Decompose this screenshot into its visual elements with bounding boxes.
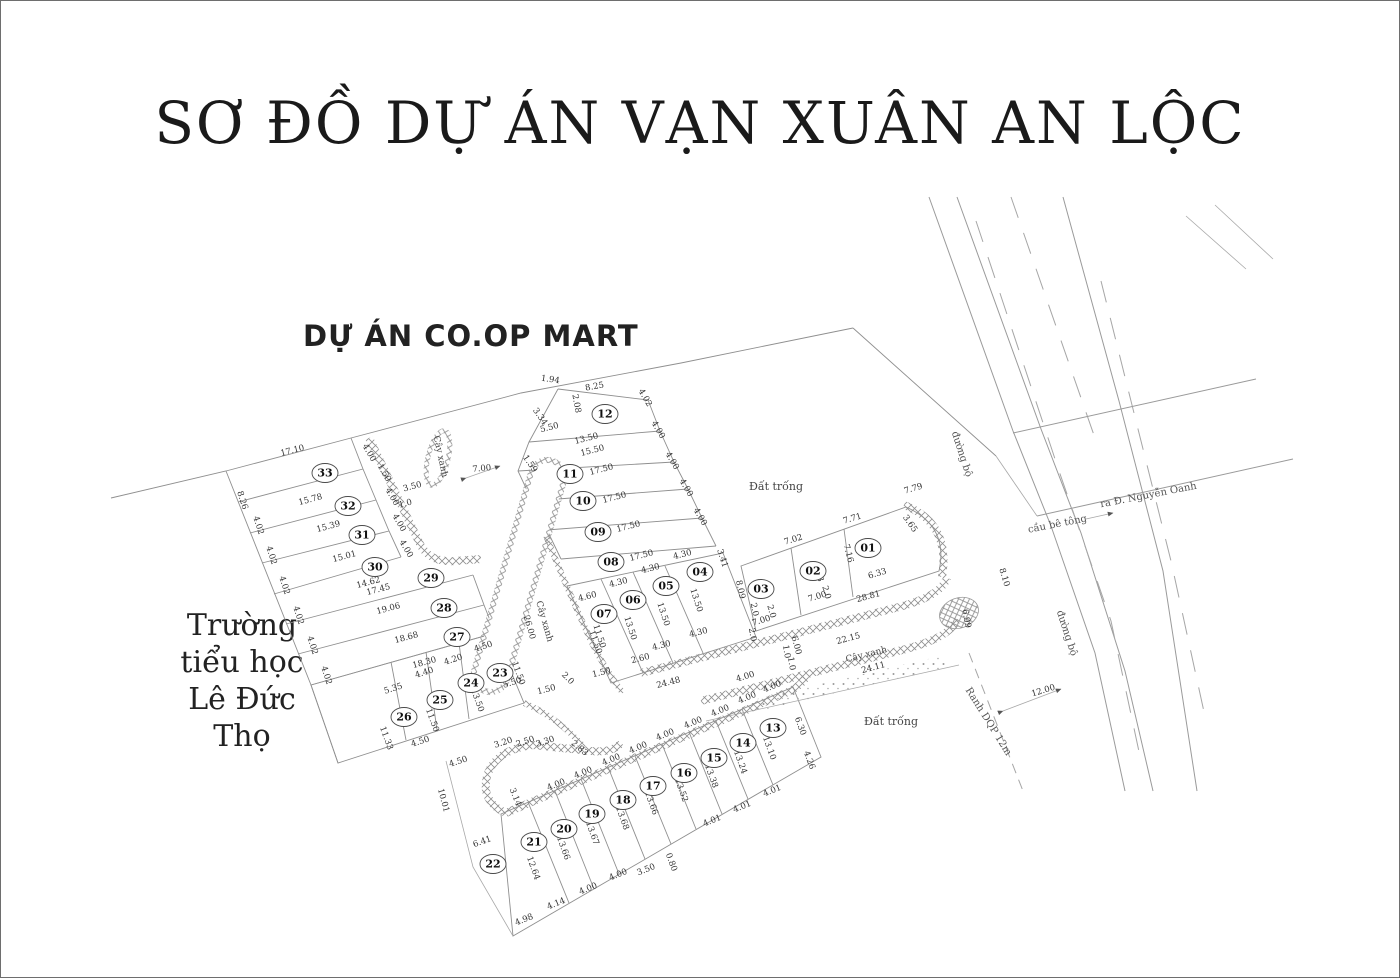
dimension-label: 13.50: [654, 601, 671, 627]
lot-number: 21: [526, 836, 541, 849]
dimension-label: 4.01: [702, 813, 723, 829]
area-label: đường bộ: [1054, 609, 1079, 657]
lot-number: 01: [860, 542, 875, 555]
dimension-label: 2.0: [748, 602, 761, 617]
dimension-label: 4.60: [577, 590, 598, 604]
dimension-label: 7.00: [472, 463, 492, 475]
dimension-label: 1.94: [540, 374, 560, 387]
lot-number: 32: [340, 500, 355, 513]
dimension-label: 4.30: [640, 562, 661, 576]
dimension-label: 15.39: [315, 519, 341, 535]
dimension-label: 4.14: [546, 896, 567, 912]
dimension-label: 7.71: [842, 512, 863, 527]
dimension-label: 2.0: [559, 670, 576, 687]
dimension-label: 4.01: [762, 783, 783, 799]
dimension-label: 4.02: [263, 545, 278, 566]
dimension-label: 2.83: [569, 739, 590, 759]
dimension-label: 10.01: [435, 787, 451, 813]
lot-number: 07: [596, 608, 611, 621]
dimension-label: 3.50: [636, 862, 657, 878]
dimension-label: 4.30: [608, 576, 629, 590]
dimension-label: 24.48: [655, 675, 681, 691]
lot-number: 22: [485, 858, 500, 871]
lot-number: 31: [354, 529, 369, 542]
dimension-label: 2.60: [630, 652, 651, 666]
dimension-label: 2.08: [569, 393, 582, 413]
dimension-label: 17.50: [601, 490, 627, 506]
dimension-label: 8.26: [234, 490, 249, 511]
lot-number: 13: [765, 722, 780, 735]
dimension-label: 15.78: [297, 492, 323, 508]
dimension-label: 28.81: [855, 589, 881, 605]
dimension-label: 4.50: [448, 754, 469, 769]
dimension-label: 4.00: [677, 477, 695, 498]
dimension-label: 17.50: [615, 519, 641, 535]
lot-number: 09: [590, 526, 605, 539]
lot-number: 18: [615, 794, 631, 807]
lot-number: 10: [575, 495, 591, 508]
dimension-label: 13.50: [687, 587, 704, 613]
dimension-label: 17.50: [628, 548, 654, 564]
dimension-label: 4.00: [663, 450, 681, 471]
dimension-label: 4.50: [410, 734, 431, 749]
dimension-label: 12.00: [1030, 683, 1056, 700]
dimension-label: 8.10: [996, 567, 1011, 588]
dimension-label: 6.33: [867, 567, 888, 582]
dimension-label: 1.0: [785, 656, 797, 671]
lot-number: 08: [603, 556, 619, 569]
lot-number: 28: [436, 602, 452, 615]
lot-number: 25: [432, 694, 447, 707]
lot-number: 03: [753, 583, 768, 596]
dimension-label: 1.0: [398, 497, 414, 510]
dimension-label: 13.50: [621, 615, 638, 641]
dimension-label: 4.98: [514, 912, 535, 928]
lot-number: 33: [317, 467, 332, 480]
lot-number: 02: [805, 565, 820, 578]
lot-number: 23: [492, 667, 507, 680]
lot-number: 30: [367, 561, 383, 574]
dimension-label: 7.02: [783, 533, 804, 548]
lot-number: 15: [706, 752, 721, 765]
dimension-label: 15.50: [579, 443, 605, 459]
lot-number: 11: [562, 468, 577, 481]
dimension-label: 4.30: [688, 626, 709, 640]
lot-number: 05: [658, 580, 673, 593]
dimension-label: 17.10: [279, 443, 305, 459]
dimension-label: 13.10: [760, 735, 778, 761]
dimension-label: 17.50: [588, 462, 614, 478]
dimension-label: 1.50: [536, 683, 557, 697]
area-label: Đất trống: [749, 480, 803, 493]
dimension-label: 4.00: [735, 670, 756, 685]
dimension-label: 4.00: [397, 538, 415, 559]
dimension-label: 4.02: [304, 635, 319, 656]
dimension-label: 7.79: [903, 482, 924, 497]
dimension-label: 18.68: [393, 630, 419, 646]
dimension-label: 4.00: [649, 419, 667, 440]
area-label: Đất trống: [864, 715, 918, 728]
lot-number: 27: [449, 631, 464, 644]
dimension-label: 15.01: [331, 549, 357, 565]
dimension-label: 3.41: [714, 548, 729, 569]
dimension-label: 13.24: [731, 749, 749, 775]
area-label: cầu bê tông: [1027, 512, 1089, 535]
dimension-label: 6.41: [472, 834, 493, 850]
lot-number: 04: [692, 566, 708, 579]
dimension-label: 13.67: [583, 820, 601, 846]
area-label: đường bộ: [949, 430, 974, 478]
dimension-label: 11.33: [377, 725, 395, 751]
area-label: Ranh DQP 12m: [963, 686, 1014, 759]
dimension-label: 13.66: [554, 835, 572, 861]
dimension-label: 7.00: [807, 590, 828, 605]
dimension-label: 3.14: [507, 787, 523, 808]
dimension-label: 4.00: [578, 881, 599, 897]
dimension-label: 4.20: [443, 652, 464, 667]
dimension-label: 4.00: [691, 506, 709, 527]
dimension-label: 4.30: [651, 639, 672, 653]
lot-number: 26: [396, 711, 412, 724]
dimension-label: 4.02: [290, 605, 305, 626]
dimension-label: 8.25: [584, 380, 604, 393]
dimension-label: 4.01: [732, 799, 753, 815]
lot-number: 24: [463, 677, 479, 690]
dimension-label: 5.35: [383, 681, 404, 696]
dimension-label: 12.64: [524, 855, 542, 881]
site-plan-page: SƠ ĐỒ DỰ ÁN VẠN XUÂN AN LỘC DỰ ÁN CO.OP …: [0, 0, 1400, 978]
lot-number: 17: [645, 780, 660, 793]
dimension-label: 4.00: [608, 867, 629, 883]
site-map: 17.1015.7815.3915.0114.6217.4519.0618.68…: [1, 1, 1400, 978]
dimension-label: 3.50: [402, 480, 423, 495]
dimension-label: 4.02: [636, 387, 654, 408]
dimension-label: 3.65: [900, 513, 919, 534]
lot-number: 14: [735, 737, 751, 750]
area-label: ra Đ. Nguyễn Oanh: [1099, 480, 1198, 511]
dimension-label: 7.16: [841, 543, 856, 564]
lot-number: 12: [597, 408, 612, 421]
dimension-label: 11.50: [423, 707, 441, 733]
dimension-label: 19.06: [375, 601, 401, 617]
lot-number: 06: [625, 594, 641, 607]
lot-number: 19: [584, 808, 599, 821]
lot-number: 29: [423, 572, 438, 585]
dimension-label: 22.15: [835, 631, 861, 647]
dimension-label: 0.80: [663, 852, 679, 873]
lot-number: 20: [556, 823, 572, 836]
lot-number: 16: [676, 767, 692, 780]
